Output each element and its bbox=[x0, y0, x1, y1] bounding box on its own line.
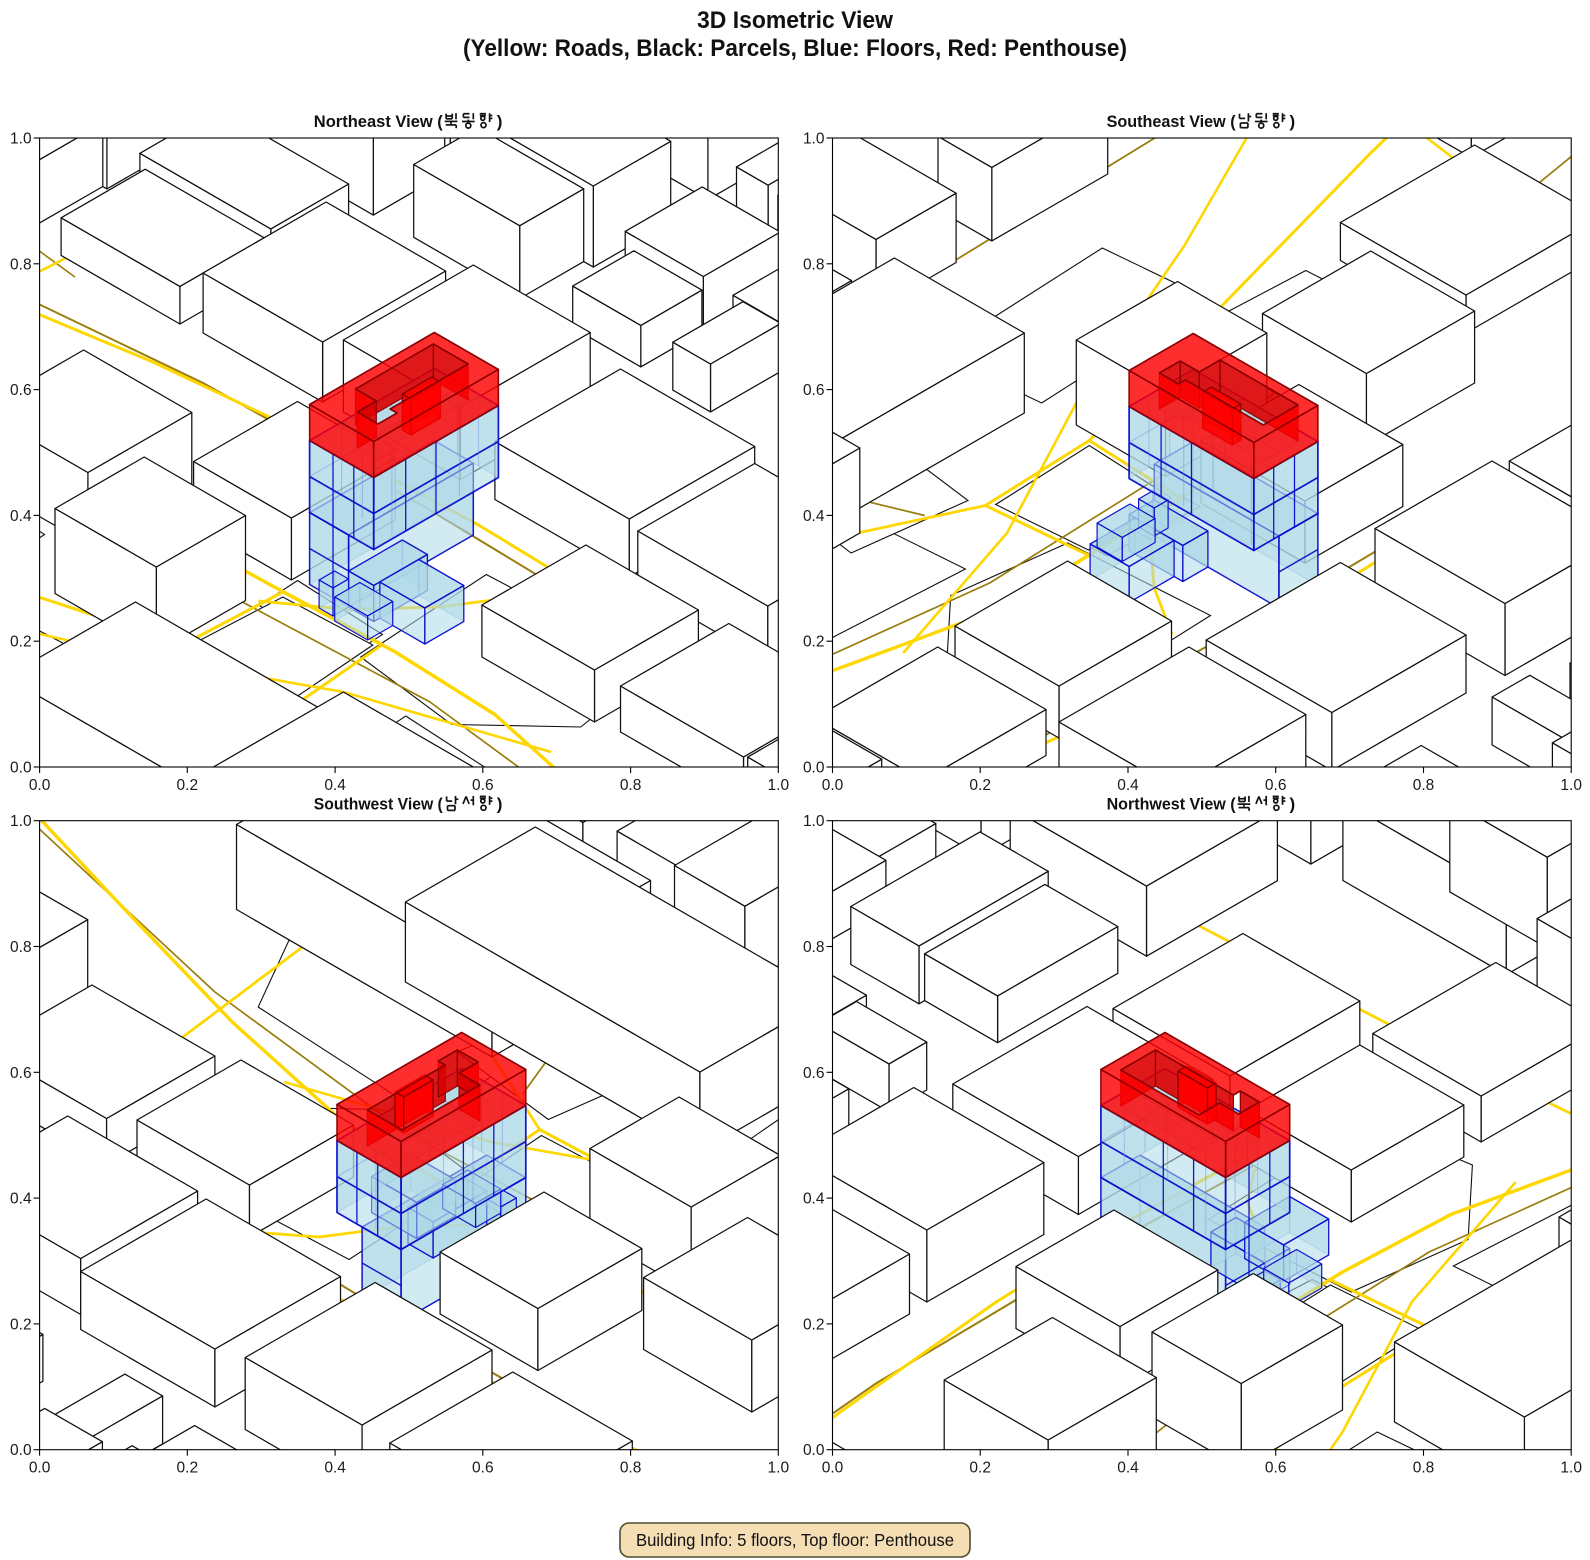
svg-text:0.6: 0.6 bbox=[10, 1065, 32, 1082]
svg-text:Southwest View (: Southwest View ( bbox=[314, 795, 443, 814]
svg-text:0.8: 0.8 bbox=[10, 256, 32, 273]
svg-text:0.4: 0.4 bbox=[10, 508, 32, 525]
svg-text:0.4: 0.4 bbox=[1117, 777, 1139, 794]
svg-text:0.4: 0.4 bbox=[324, 1460, 346, 1477]
svg-text:1.0: 1.0 bbox=[768, 777, 790, 794]
svg-text:0.6: 0.6 bbox=[1265, 777, 1287, 794]
svg-text:0.4: 0.4 bbox=[803, 508, 825, 525]
svg-text:1.0: 1.0 bbox=[1560, 1460, 1582, 1477]
svg-text:0.0: 0.0 bbox=[803, 1442, 825, 1459]
svg-text:0.6: 0.6 bbox=[10, 382, 32, 399]
svg-text:1.0: 1.0 bbox=[803, 131, 825, 148]
svg-text:0.2: 0.2 bbox=[177, 777, 199, 794]
svg-text:): ) bbox=[497, 112, 503, 131]
svg-text:Northwest View (: Northwest View ( bbox=[1107, 795, 1236, 814]
svg-text:0.8: 0.8 bbox=[620, 777, 642, 794]
svg-text:0.6: 0.6 bbox=[803, 1065, 825, 1082]
svg-text:0.8: 0.8 bbox=[1413, 1460, 1435, 1477]
svg-text:0.6: 0.6 bbox=[803, 382, 825, 399]
svg-text:1.0: 1.0 bbox=[10, 131, 32, 148]
svg-text:0.8: 0.8 bbox=[1413, 777, 1435, 794]
svg-text:0.0: 0.0 bbox=[10, 1442, 32, 1459]
svg-text:0.2: 0.2 bbox=[10, 634, 32, 651]
svg-text:0.6: 0.6 bbox=[472, 777, 494, 794]
svg-text:0.0: 0.0 bbox=[29, 777, 51, 794]
svg-text:Building Info: 5 floors, Top f: Building Info: 5 floors, Top floor: Pent… bbox=[636, 1530, 954, 1550]
svg-text:): ) bbox=[1290, 795, 1296, 814]
svg-text:0.6: 0.6 bbox=[1265, 1460, 1287, 1477]
svg-text:0.4: 0.4 bbox=[1117, 1460, 1139, 1477]
svg-text:0.0: 0.0 bbox=[10, 760, 32, 777]
svg-text:1.0: 1.0 bbox=[1560, 777, 1582, 794]
svg-text:0.4: 0.4 bbox=[10, 1191, 32, 1208]
svg-text:0.2: 0.2 bbox=[803, 1316, 825, 1333]
svg-text:0.2: 0.2 bbox=[10, 1316, 32, 1333]
svg-text:0.6: 0.6 bbox=[472, 1460, 494, 1477]
svg-text:0.0: 0.0 bbox=[822, 777, 844, 794]
svg-text:1.0: 1.0 bbox=[803, 813, 825, 830]
svg-text:0.0: 0.0 bbox=[822, 1460, 844, 1477]
svg-text:): ) bbox=[1290, 112, 1296, 131]
svg-text:0.0: 0.0 bbox=[803, 760, 825, 777]
svg-text:0.2: 0.2 bbox=[969, 1460, 991, 1477]
svg-text:0.8: 0.8 bbox=[803, 939, 825, 956]
svg-text:Southeast View (: Southeast View ( bbox=[1107, 112, 1236, 131]
svg-text:0.2: 0.2 bbox=[177, 1460, 199, 1477]
svg-text:0.4: 0.4 bbox=[324, 777, 346, 794]
svg-text:0.2: 0.2 bbox=[969, 777, 991, 794]
svg-text:0.0: 0.0 bbox=[29, 1460, 51, 1477]
svg-text:0.8: 0.8 bbox=[803, 256, 825, 273]
svg-text:(Yellow: Roads, Black: Parcels: (Yellow: Roads, Black: Parcels, Blue: Fl… bbox=[463, 35, 1127, 62]
svg-text:0.8: 0.8 bbox=[10, 939, 32, 956]
svg-text:0.4: 0.4 bbox=[803, 1191, 825, 1208]
svg-text:): ) bbox=[497, 795, 503, 814]
svg-text:0.2: 0.2 bbox=[803, 634, 825, 651]
svg-text:3D Isometric View: 3D Isometric View bbox=[697, 7, 893, 34]
svg-text:0.8: 0.8 bbox=[620, 1460, 642, 1477]
svg-text:Northeast View (: Northeast View ( bbox=[314, 112, 443, 131]
svg-text:1.0: 1.0 bbox=[768, 1460, 790, 1477]
svg-text:1.0: 1.0 bbox=[10, 813, 32, 830]
